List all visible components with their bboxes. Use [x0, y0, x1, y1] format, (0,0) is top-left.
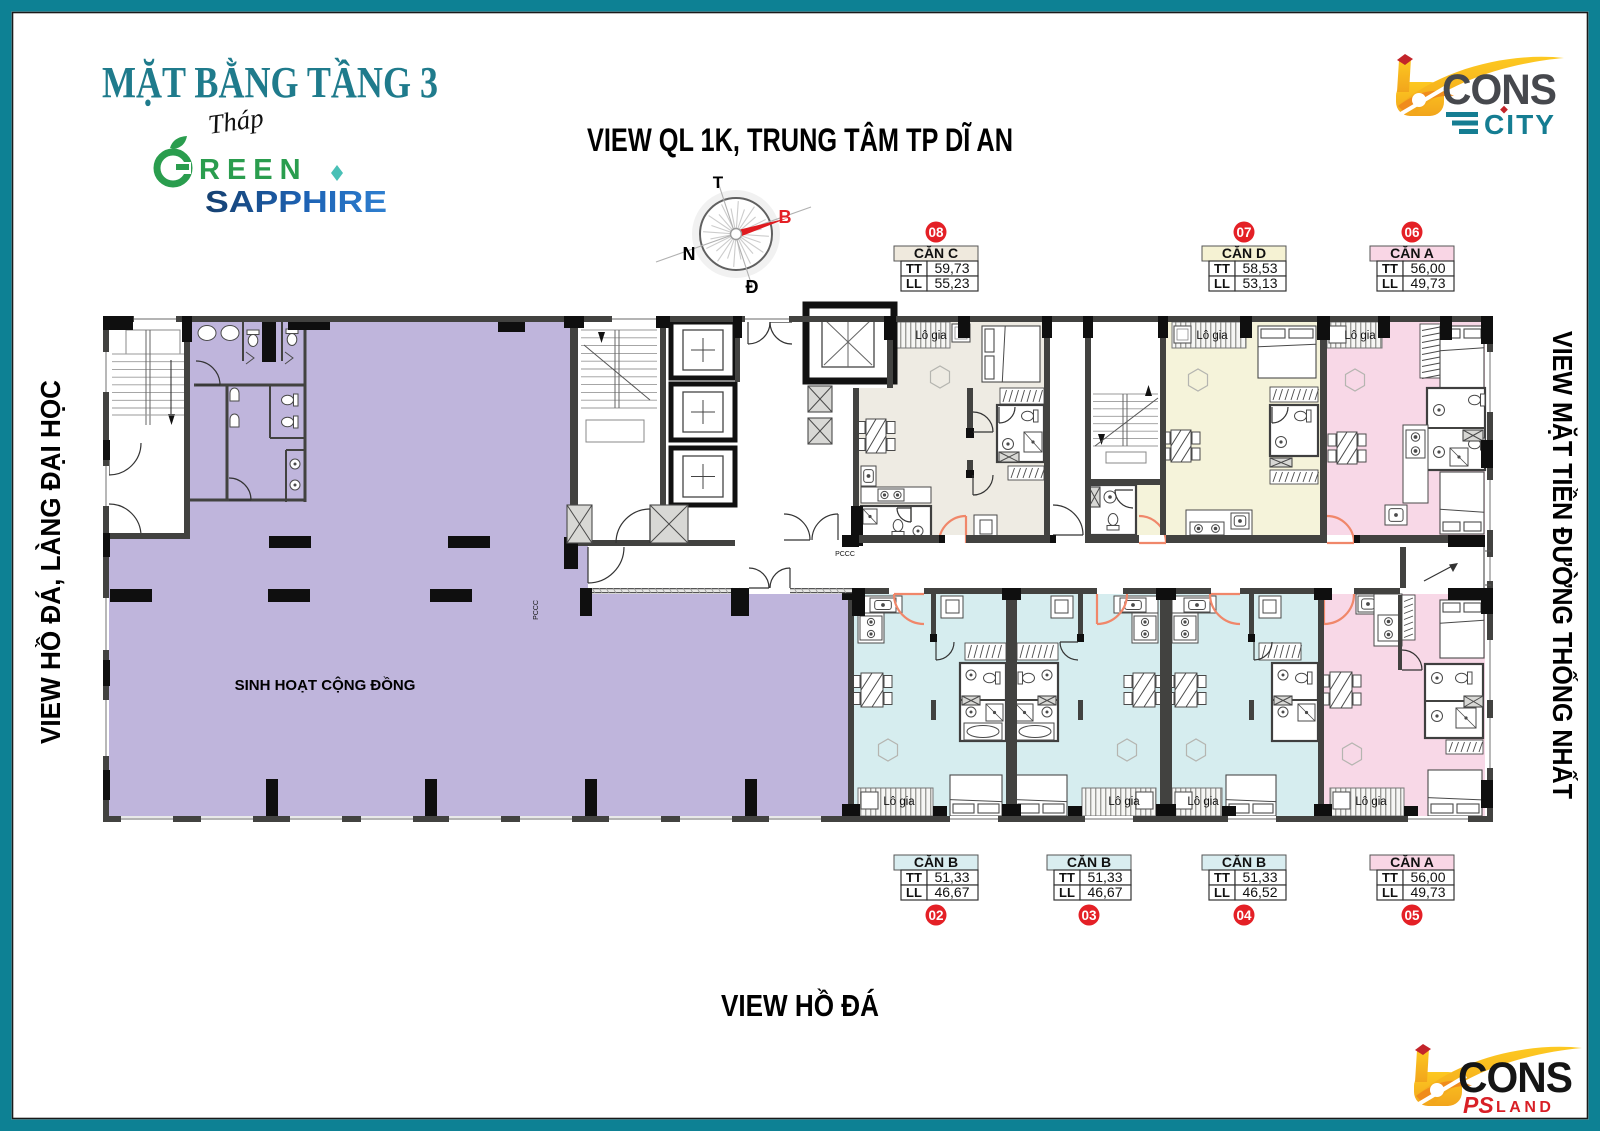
svg-text:56,00: 56,00: [1410, 260, 1445, 276]
svg-text:Lô gia: Lô gia: [1344, 330, 1376, 342]
svg-text:REEN: REEN: [199, 154, 308, 186]
svg-text:VIEW HỒ ĐÁ: VIEW HỒ ĐÁ: [721, 987, 879, 1023]
svg-text:PCCC: PCCC: [835, 551, 855, 558]
svg-text:55,23: 55,23: [934, 275, 969, 291]
svg-text:46,67: 46,67: [934, 884, 969, 900]
svg-text:CĂN B: CĂN B: [914, 854, 958, 870]
svg-text:46,52: 46,52: [1242, 884, 1277, 900]
svg-text:Lô gia: Lô gia: [1187, 796, 1219, 808]
svg-text:08: 08: [928, 225, 944, 240]
svg-text:53,13: 53,13: [1242, 275, 1277, 291]
svg-text:59,73: 59,73: [934, 260, 969, 276]
svg-text:46,67: 46,67: [1087, 884, 1122, 900]
svg-text:Lô gia: Lô gia: [1355, 796, 1387, 808]
svg-text:TT: TT: [1382, 261, 1398, 276]
svg-text:B: B: [779, 207, 792, 227]
svg-text:TT: TT: [1059, 870, 1075, 885]
svg-text:03: 03: [1081, 908, 1097, 923]
svg-text:Đ: Đ: [746, 277, 759, 297]
svg-text:TT: TT: [1214, 261, 1230, 276]
svg-text:CĂN A: CĂN A: [1390, 245, 1434, 261]
svg-text:56,00: 56,00: [1410, 869, 1445, 885]
svg-text:CĂN B: CĂN B: [1067, 854, 1111, 870]
svg-text:Lô gia: Lô gia: [1196, 330, 1228, 342]
svg-text:49,73: 49,73: [1410, 275, 1445, 291]
svg-text:VIEW HỒ ĐÁ, LÀNG ĐẠI HỌC: VIEW HỒ ĐÁ, LÀNG ĐẠI HỌC: [35, 380, 66, 744]
svg-text:CĂN B: CĂN B: [1222, 854, 1266, 870]
svg-text:02: 02: [928, 908, 943, 923]
svg-text:PCCC: PCCC: [533, 600, 540, 620]
svg-text:04: 04: [1236, 908, 1252, 923]
svg-text:LL: LL: [1382, 885, 1398, 900]
svg-text:T: T: [713, 173, 724, 192]
svg-text:Lô gia: Lô gia: [1108, 796, 1140, 808]
svg-text:LL: LL: [906, 885, 922, 900]
svg-text:CĂN A: CĂN A: [1390, 854, 1434, 870]
svg-text:LL: LL: [1214, 276, 1230, 291]
svg-text:LL: LL: [1059, 885, 1075, 900]
svg-text:N: N: [683, 244, 696, 264]
svg-text:PS: PS: [1463, 1092, 1494, 1118]
svg-text:LAND: LAND: [1496, 1099, 1554, 1116]
svg-text:VIEW MẶT TIỀN ĐƯỜNG THỐNG NHẤT: VIEW MẶT TIỀN ĐƯỜNG THỐNG NHẤT: [1547, 331, 1579, 799]
svg-text:51,33: 51,33: [1087, 869, 1122, 885]
svg-text:Lô gia: Lô gia: [915, 330, 947, 342]
svg-text:05: 05: [1404, 908, 1420, 923]
svg-text:51,33: 51,33: [934, 869, 969, 885]
svg-text:VIEW QL 1K, TRUNG TÂM TP DĨ AN: VIEW QL 1K, TRUNG TÂM TP DĨ AN: [587, 122, 1013, 158]
svg-text:TT: TT: [906, 870, 922, 885]
svg-text:Lô gia: Lô gia: [883, 796, 915, 808]
svg-text:SAPPHIRE: SAPPHIRE: [205, 184, 387, 219]
svg-text:TT: TT: [1382, 870, 1398, 885]
svg-text:SINH HOẠT CỘNG ĐỒNG: SINH HOẠT CỘNG ĐỒNG: [235, 676, 416, 694]
svg-text:06: 06: [1404, 225, 1420, 240]
svg-text:TT: TT: [906, 261, 922, 276]
svg-text:MẶT BẰNG TẦNG 3: MẶT BẰNG TẦNG 3: [102, 57, 438, 107]
svg-text:CITY: CITY: [1484, 109, 1556, 140]
svg-text:58,53: 58,53: [1242, 260, 1277, 276]
svg-text:49,73: 49,73: [1410, 884, 1445, 900]
svg-text:LL: LL: [1382, 276, 1398, 291]
svg-text:07: 07: [1236, 225, 1251, 240]
svg-text:CĂN C: CĂN C: [914, 245, 958, 261]
svg-text:LL: LL: [1214, 885, 1230, 900]
svg-text:LL: LL: [906, 276, 922, 291]
svg-text:CONS: CONS: [1442, 66, 1556, 114]
svg-text:TT: TT: [1214, 870, 1230, 885]
svg-text:51,33: 51,33: [1242, 869, 1277, 885]
svg-text:CĂN D: CĂN D: [1222, 245, 1266, 261]
